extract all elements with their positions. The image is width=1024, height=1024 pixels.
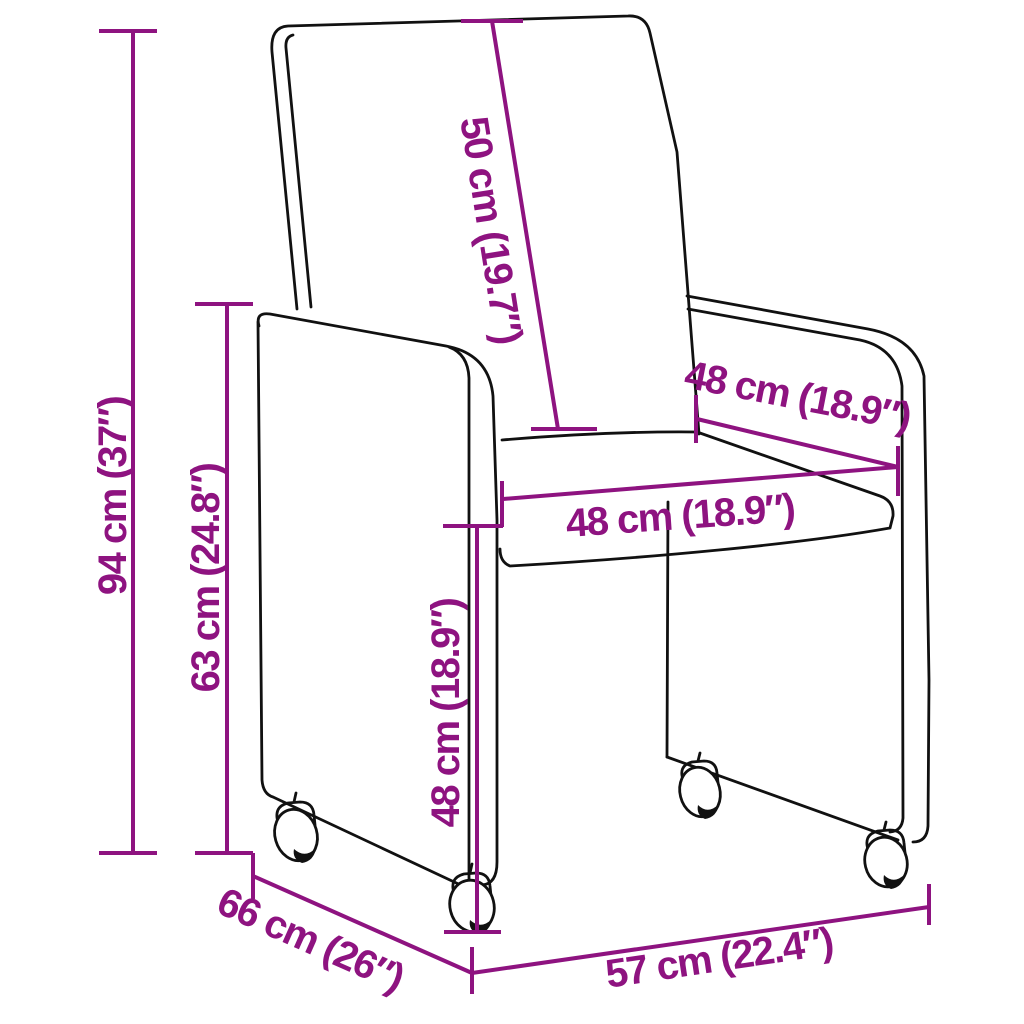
dimension-label-seat-height: 48 cm (18.9″) bbox=[424, 598, 468, 827]
dimension-label-overall-height: 94 cm (37″) bbox=[91, 397, 135, 596]
chair-drawing bbox=[258, 16, 929, 937]
caster-front-center bbox=[444, 864, 499, 937]
dimension-label-overall-depth: 66 cm (26″) bbox=[211, 880, 410, 1001]
right-armrest-front-edge bbox=[667, 502, 668, 757]
dimension-label-seat-width-back: 48 cm (18.9″) bbox=[681, 353, 914, 440]
dimension-label-overall-width: 57 cm (22.4″) bbox=[603, 919, 836, 996]
caster-back-right bbox=[860, 822, 913, 891]
dimension-diagram-canvas: 94 cm (37″) 63 cm (24.8″) 50 cm (19.7″) … bbox=[0, 0, 1024, 1024]
caster-front-left bbox=[269, 793, 324, 866]
dimension-label-arm-height: 63 cm (24.8″) bbox=[184, 463, 228, 692]
dimension-label-backrest-length: 50 cm (19.7″) bbox=[451, 114, 530, 347]
dimension-label-seat-depth: 48 cm (18.9″) bbox=[564, 486, 795, 546]
armchair-dimension-diagram: 94 cm (37″) 63 cm (24.8″) 50 cm (19.7″) … bbox=[0, 0, 1024, 1024]
backrest-seam bbox=[286, 35, 311, 307]
